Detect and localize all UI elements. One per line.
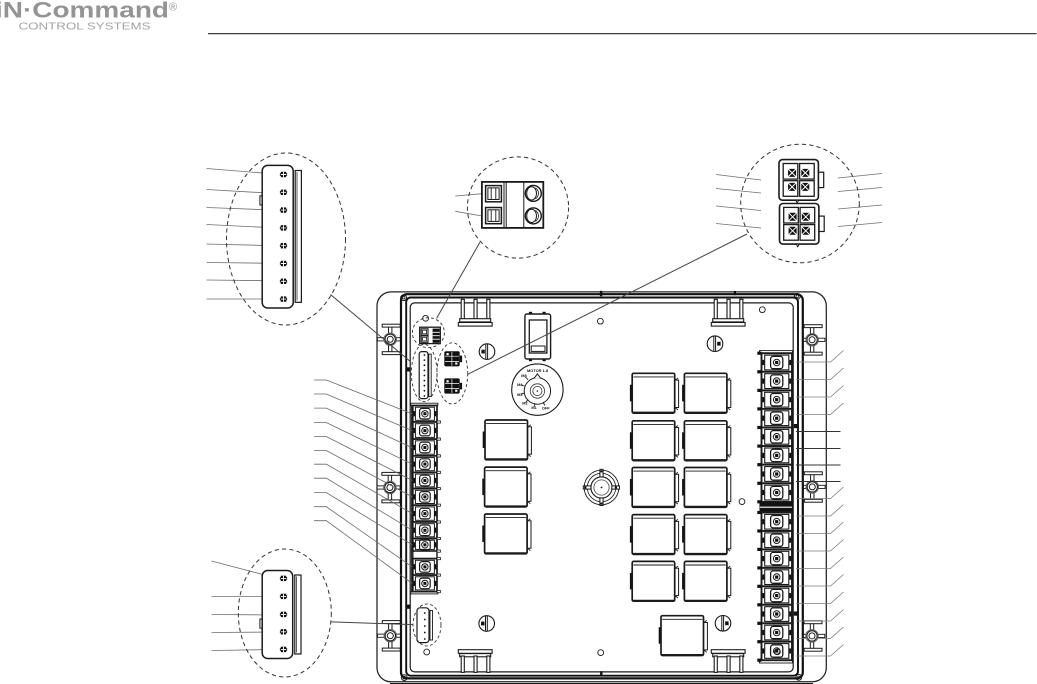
svg-text:M2: M2 <box>522 401 528 406</box>
svg-text:®: ® <box>169 2 177 14</box>
svg-text:iN·Command: iN·Command <box>0 0 169 23</box>
svg-text:OFF: OFF <box>542 405 550 410</box>
svg-text:MOTOR 1-8: MOTOR 1-8 <box>527 368 549 373</box>
svg-text:M8: M8 <box>521 373 527 378</box>
svg-text:M4: M4 <box>517 382 523 387</box>
svg-text:CONTROL SYSTEMS: CONTROL SYSTEMS <box>19 22 151 33</box>
svg-text:M3: M3 <box>517 392 523 397</box>
svg-text:M1: M1 <box>531 405 537 410</box>
